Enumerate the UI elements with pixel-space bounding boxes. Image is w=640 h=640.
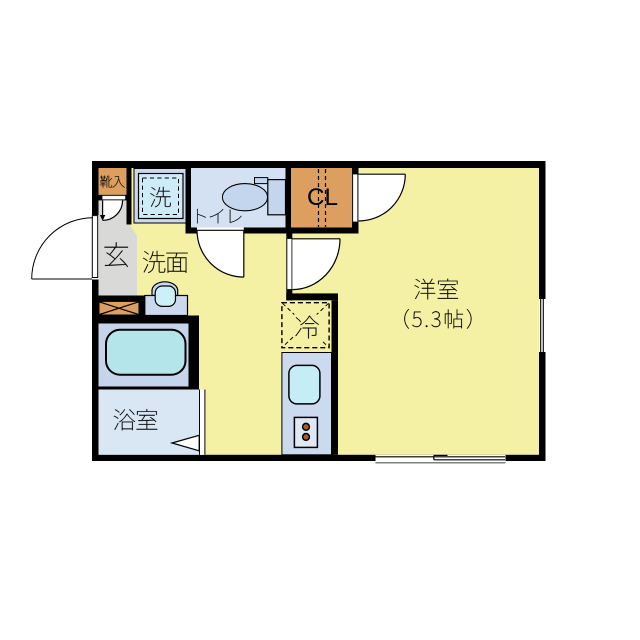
svg-text:CL: CL	[307, 184, 338, 211]
